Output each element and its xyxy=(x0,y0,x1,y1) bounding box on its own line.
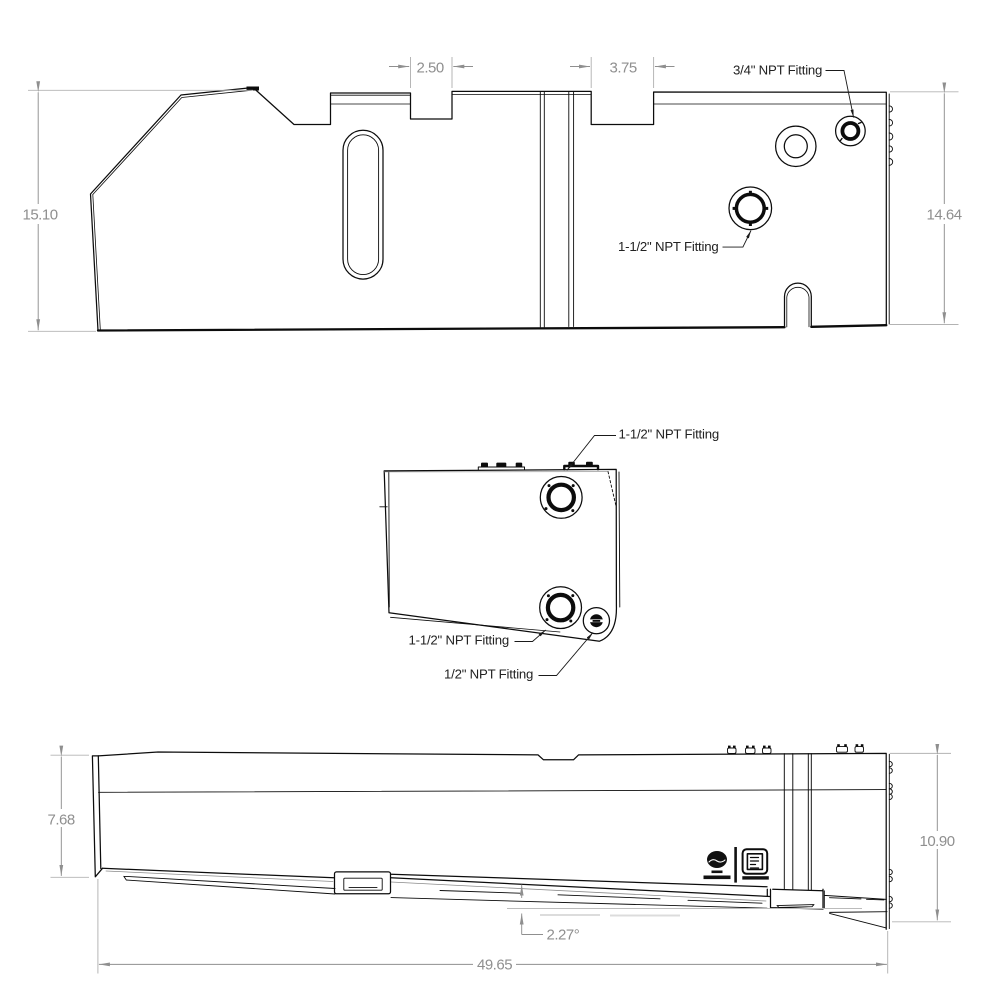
svg-text:2.27°: 2.27° xyxy=(547,927,580,944)
svg-text:1/2" NPT Fitting: 1/2" NPT Fitting xyxy=(444,667,533,682)
svg-text:1-1/2" NPT Fitting: 1-1/2" NPT Fitting xyxy=(619,427,720,442)
svg-text:10.90: 10.90 xyxy=(920,833,955,850)
svg-text:3/4" NPT Fitting: 3/4" NPT Fitting xyxy=(733,63,822,78)
svg-text:7.68: 7.68 xyxy=(48,812,75,829)
svg-text:2.50: 2.50 xyxy=(417,60,444,77)
svg-text:1-1/2" NPT Fitting: 1-1/2" NPT Fitting xyxy=(618,239,719,254)
svg-text:15.10: 15.10 xyxy=(23,207,58,224)
svg-text:49.65: 49.65 xyxy=(477,957,512,974)
svg-text:1-1/2" NPT Fitting: 1-1/2" NPT Fitting xyxy=(409,633,510,648)
svg-text:14.64: 14.64 xyxy=(927,207,962,224)
svg-text:3.75: 3.75 xyxy=(610,60,637,77)
